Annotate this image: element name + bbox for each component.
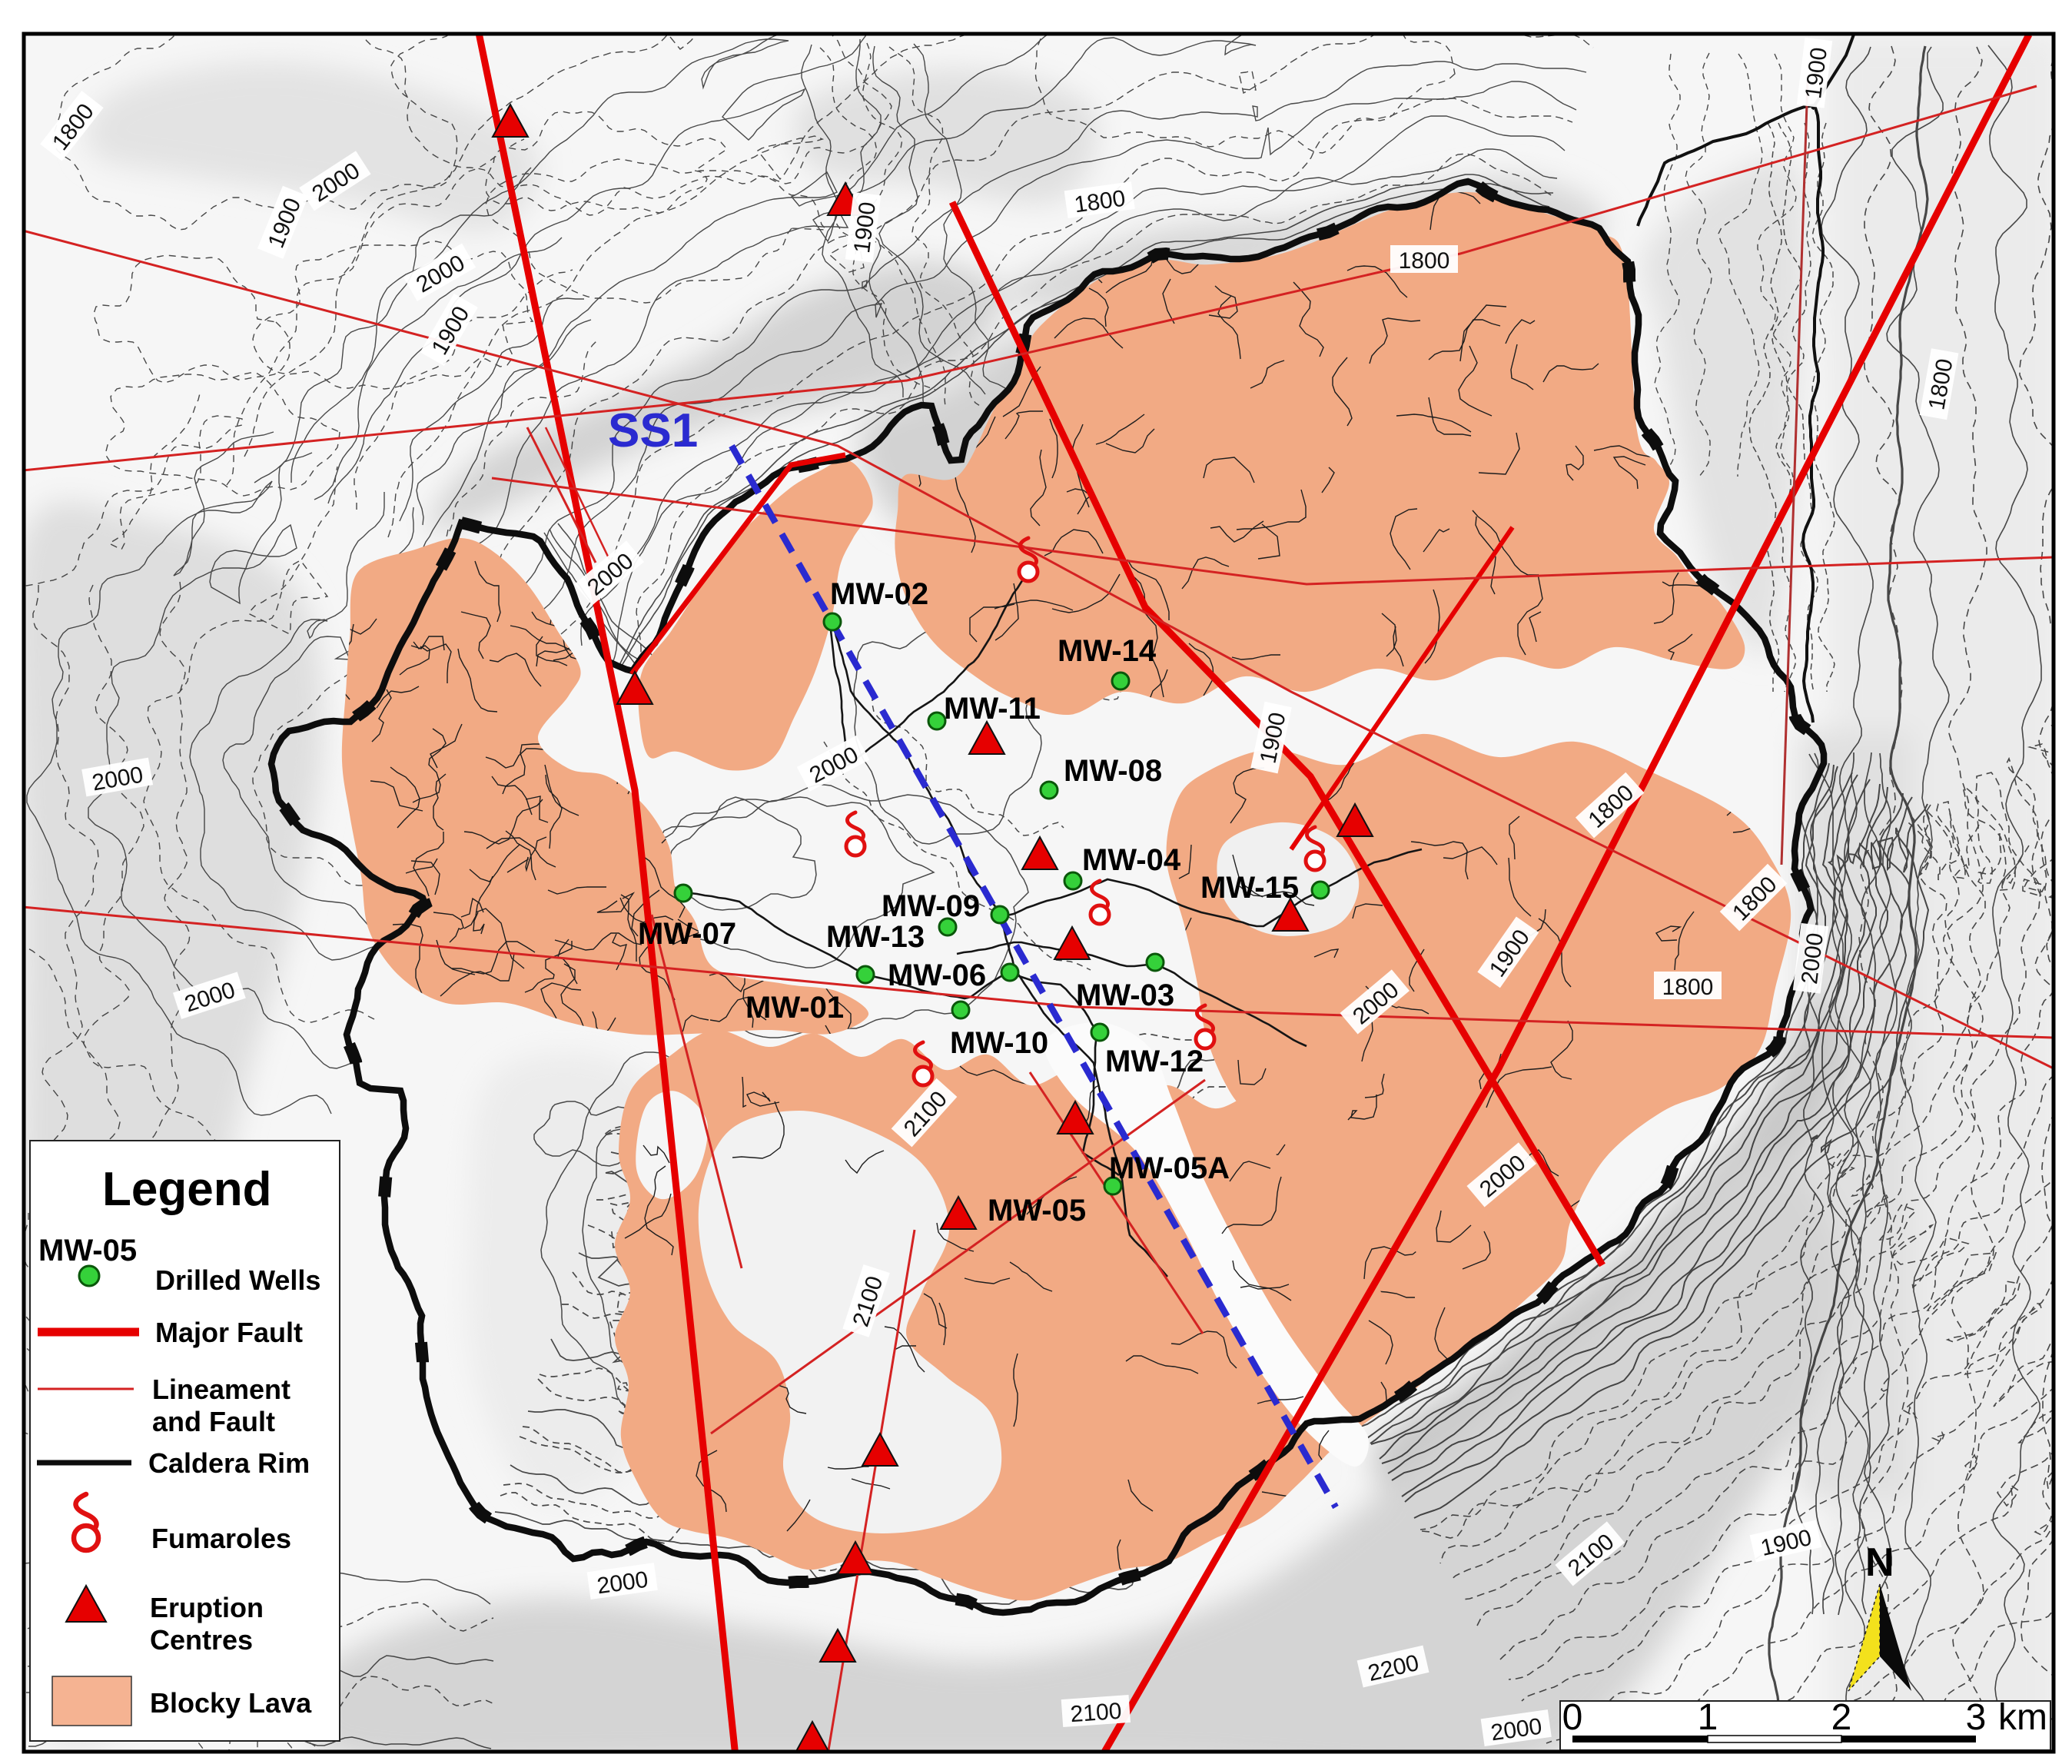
svg-text:0: 0: [1562, 1697, 1583, 1738]
svg-text:N: N: [1865, 1540, 1894, 1585]
svg-text:MW-02: MW-02: [830, 577, 928, 611]
svg-text:3: 3: [1966, 1697, 1987, 1738]
svg-text:Blocky Lava: Blocky Lava: [150, 1687, 312, 1719]
svg-text:Eruption: Eruption: [150, 1592, 264, 1623]
svg-text:MW-06: MW-06: [888, 958, 986, 992]
svg-text:Caldera Rim: Caldera Rim: [148, 1447, 310, 1479]
svg-text:MW-10: MW-10: [950, 1026, 1048, 1060]
svg-text:MW-04: MW-04: [1082, 843, 1181, 877]
svg-text:Legend: Legend: [102, 1163, 271, 1216]
svg-text:2: 2: [1831, 1697, 1852, 1738]
svg-text:1800: 1800: [1399, 248, 1450, 274]
svg-text:Lineament: Lineament: [152, 1374, 291, 1405]
svg-text:MW-09: MW-09: [882, 889, 980, 923]
svg-text:Centres: Centres: [150, 1624, 253, 1656]
svg-text:MW-05: MW-05: [988, 1194, 1086, 1227]
svg-text:MW-05A: MW-05A: [1109, 1151, 1230, 1185]
svg-text:and Fault: and Fault: [152, 1406, 275, 1437]
svg-text:MW-01: MW-01: [745, 991, 844, 1025]
svg-text:Major Fault: Major Fault: [155, 1317, 303, 1348]
svg-text:MW-12: MW-12: [1105, 1045, 1204, 1078]
svg-text:MW-08: MW-08: [1064, 754, 1162, 788]
svg-text:MW-15: MW-15: [1200, 871, 1299, 905]
svg-text:MW-07: MW-07: [638, 917, 736, 951]
svg-text:1800: 1800: [1662, 975, 1714, 1000]
svg-text:MW-03: MW-03: [1076, 978, 1174, 1012]
svg-text:2100: 2100: [1070, 1699, 1123, 1728]
svg-text:MW-14: MW-14: [1058, 634, 1157, 668]
svg-text:km: km: [1998, 1697, 2047, 1738]
svg-text:1: 1: [1698, 1697, 1718, 1738]
svg-text:Fumaroles: Fumaroles: [151, 1523, 291, 1554]
svg-text:SS1: SS1: [608, 404, 698, 457]
svg-text:Drilled Wells: Drilled Wells: [155, 1264, 320, 1296]
svg-text:MW-11: MW-11: [944, 692, 1041, 726]
svg-text:MW-13: MW-13: [826, 920, 925, 954]
svg-text:MW-05: MW-05: [38, 1234, 137, 1267]
